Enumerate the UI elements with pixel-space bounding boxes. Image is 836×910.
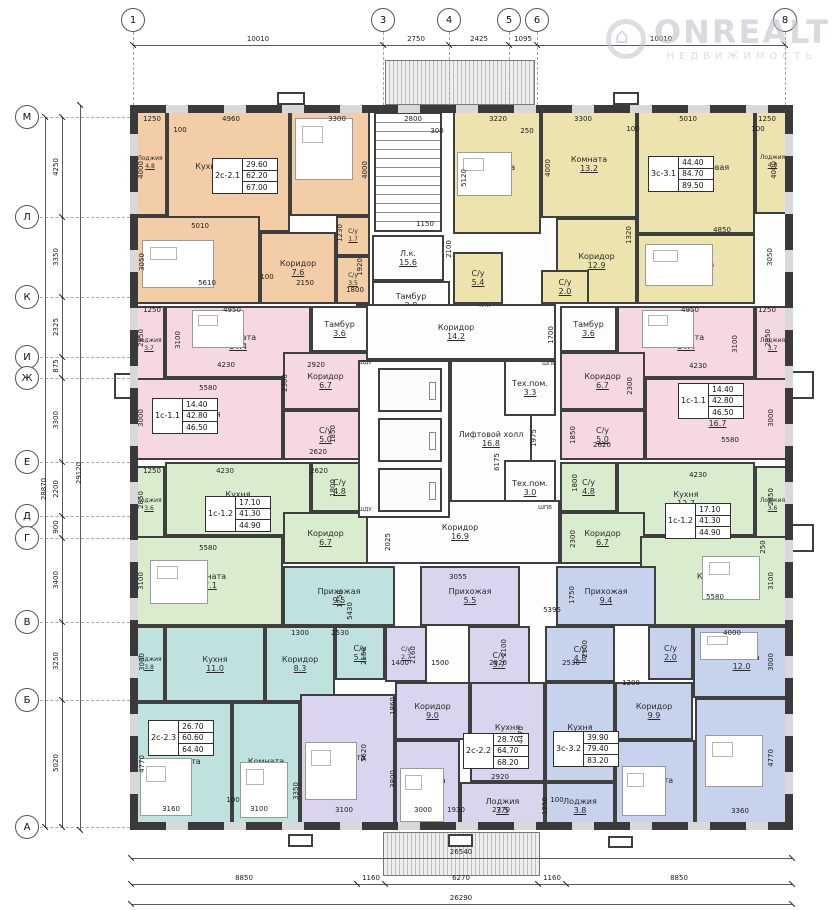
apartment-area-value: 60.60: [179, 733, 213, 745]
room-label: Тамбур: [324, 320, 355, 329]
apartment-info-block: 1с-1.114.4042.8046.50: [152, 398, 218, 434]
dimension-label: 2950: [137, 329, 145, 347]
dimension-label: 2150: [296, 279, 314, 287]
apartment-type-code: 1с-1.2: [206, 497, 236, 531]
room-area: 1.7: [348, 236, 358, 243]
apartment-area-value: 41.30: [236, 509, 270, 521]
apartment-area-value: 14.40: [709, 384, 743, 396]
grid-axis-marker: Е: [15, 450, 39, 474]
dimension-label: 3055: [449, 573, 467, 581]
room-area: 3.7: [144, 345, 154, 352]
bed-furniture: [642, 310, 694, 348]
apartment-area-value: 89.50: [679, 180, 713, 191]
grid-axis-line: [40, 462, 130, 463]
grid-axis-line: [40, 700, 130, 701]
apartment-info-block: 1с-1.217.1041.3044.90: [205, 496, 271, 532]
grid-axis-line: [509, 32, 510, 105]
room-label: Прихожая: [449, 587, 492, 596]
dimension-label: 5610: [198, 279, 216, 287]
dimension-label: 1250: [758, 115, 776, 123]
dimension-label: 3350: [292, 782, 300, 800]
dimension-label: 5020: [52, 754, 60, 772]
room-label: Кухня: [202, 655, 227, 664]
dimension-label: 2950: [764, 329, 772, 347]
utility-label: ШДУ: [358, 507, 372, 513]
dimension-label: 2850: [767, 488, 775, 506]
grid-axis-marker: 1: [121, 8, 145, 32]
balcony-canopy-top: [385, 60, 535, 105]
room-area: 16.8: [482, 439, 500, 449]
dimension-label: 1250: [143, 467, 161, 475]
room: Тамбур3.6: [560, 306, 617, 352]
apartment-type-code: 2с-2.3: [149, 721, 179, 755]
dimension-label: 3000: [767, 409, 775, 427]
dimension-label: 100: [226, 796, 239, 804]
dimension-label: 6270: [452, 874, 470, 882]
room-area: 4.8: [582, 487, 595, 497]
dimension-label: 4000: [544, 159, 552, 177]
dimension-label: 2920: [491, 773, 509, 781]
dimension-label: 2100: [581, 640, 589, 658]
dimension-label: 3100: [174, 331, 182, 349]
dimension-label: 8850: [235, 874, 253, 882]
dimension-label: 3100: [250, 805, 268, 813]
room-area: 3.8: [574, 806, 587, 816]
apartment-area-value: 44.40: [679, 157, 713, 169]
room-label: Коридор: [442, 523, 478, 532]
dimension-label: 2325: [52, 318, 60, 336]
apartment-area-value: 39.90: [584, 732, 618, 744]
exterior-wall-left: [130, 105, 138, 830]
apartment-area-value: 29.60: [243, 159, 277, 171]
elevator-car: [378, 468, 442, 512]
dimension-label: 2620: [593, 441, 611, 449]
grid-axis-line: [40, 827, 130, 828]
dimension-line: [45, 117, 46, 827]
apartment-type-code: 1с-1.1: [153, 399, 183, 433]
dimension-label: 3360: [731, 807, 749, 815]
dimension-label: 8850: [670, 874, 688, 882]
dimension-line: [62, 117, 63, 827]
room-label: Коридор: [307, 372, 343, 381]
room-label: С/у: [664, 644, 677, 653]
apartment-area-value: 46.50: [709, 407, 743, 418]
dimension-label: 1700: [547, 326, 555, 344]
grid-axis-marker: 8: [773, 8, 797, 32]
room-area: 2.0: [664, 653, 677, 663]
dimension-label: 4770: [138, 755, 146, 773]
dimension-label: 4230: [689, 471, 707, 479]
dimension-label: 3220: [489, 115, 507, 123]
dimension-label: 100: [751, 125, 764, 133]
grid-axis-line: [40, 538, 130, 539]
dimension-label: 100: [550, 796, 563, 804]
dimension-label: 3800: [389, 770, 397, 788]
dimension-line: [131, 904, 792, 905]
bed-furniture: [192, 310, 244, 348]
room-area: 6.7: [319, 381, 332, 391]
room-label: Коридор: [307, 529, 343, 538]
dimension-label: 4000: [770, 161, 778, 179]
room-area: 7.6: [292, 268, 305, 278]
room-area: 3.0: [524, 488, 537, 498]
room-label: Коридор: [280, 259, 316, 268]
dimension-label: 28870: [40, 478, 48, 500]
dimension-label: 10010: [650, 35, 672, 43]
room-area: 9.4: [600, 596, 613, 606]
apartment-info-block: 2с-2.129.6062.2067.00: [212, 158, 278, 194]
room-area: 11.0: [206, 664, 224, 674]
dimension-label: 2770: [492, 806, 510, 814]
room-label: Тамбур: [573, 320, 604, 329]
bed-furniture: [295, 118, 353, 180]
room-area: 6.7: [596, 381, 609, 391]
room: С/у2.0: [541, 270, 589, 304]
watermark-brand: ONREALT: [654, 16, 830, 48]
floor-plan: Лоджия4.8Кухня-столовая19.8Комната13.2Ко…: [0, 0, 836, 910]
room-area: 12.9: [588, 261, 606, 271]
grid-axis-line: [40, 516, 130, 517]
dimension-label: 3300: [52, 411, 60, 429]
dimension-label: 5120: [460, 169, 468, 187]
utility-label: ШПВ: [538, 505, 552, 511]
apartment-type-code: 2с-2.1: [213, 159, 243, 193]
apartment-type-code: 1с-1.1: [679, 384, 709, 418]
grid-axis-marker: В: [15, 610, 39, 634]
dimension-label: 2750: [407, 35, 425, 43]
bed-furniture: [645, 244, 713, 286]
room-area: 8.3: [294, 664, 307, 674]
dimension-line: [133, 45, 785, 46]
room-label: Лоджия: [563, 797, 597, 806]
apartment-area-value: 67.00: [243, 182, 277, 193]
dimension-label: 100: [260, 273, 273, 281]
dimension-label: 1250: [143, 115, 161, 123]
grid-axis-marker: Б: [15, 688, 39, 712]
apartment-area-value: 14.40: [183, 399, 217, 411]
apartment-type-code: 3с-3.2: [554, 732, 584, 766]
room-label: Коридор: [584, 372, 620, 381]
grid-axis-marker: М: [15, 105, 39, 129]
apartment-area-value: 68.20: [494, 757, 528, 768]
grid-axis-marker: Ж: [15, 366, 39, 390]
dimension-label: 26540: [450, 848, 472, 856]
dimension-label: 3000: [138, 653, 146, 671]
room-label: Кухня: [673, 490, 698, 499]
grid-axis-line: [133, 32, 134, 105]
dimension-label: 2100: [445, 240, 453, 258]
dimension-label: 3100: [731, 335, 739, 353]
dimension-label: 26290: [450, 894, 472, 902]
room: Л.к.15.6: [372, 235, 444, 281]
dimension-label: 4950: [681, 306, 699, 314]
vent-box: [288, 834, 313, 847]
apartment-info-block: 3с-3.239.9079.4083.20: [553, 731, 619, 767]
grid-axis-line: [537, 32, 538, 105]
room-area: 4.8: [145, 163, 155, 170]
dimension-label: 2150: [360, 647, 368, 665]
dimension-line: [131, 858, 792, 859]
grid-axis-marker: 5: [497, 8, 521, 32]
dimension-label: 1920: [356, 258, 364, 276]
apartment-area-value: 64.40: [179, 744, 213, 755]
dimension-label: 1160: [362, 874, 380, 882]
dimension-label: 29120: [75, 462, 83, 484]
room-label: Тамбур: [396, 292, 427, 301]
apartment-area-value: 83.20: [584, 755, 618, 766]
dimension-label: 1850: [329, 425, 337, 443]
apartment-info-block: 3с-3.144.4084.7089.50: [648, 156, 714, 192]
dimension-label: 2025: [384, 533, 392, 551]
dimension-label: 875: [52, 359, 60, 372]
dimension-label: 5620: [360, 744, 368, 762]
room-label: Прихожая: [585, 587, 628, 596]
apartment-area-value: 44.90: [696, 527, 730, 538]
dimension-label: 4000: [361, 161, 369, 179]
apartment-type-code: 3с-3.1: [649, 157, 679, 191]
room-area: 9.9: [648, 711, 661, 721]
dimension-label: 1200: [622, 679, 640, 687]
room-area: 5.5: [464, 596, 477, 606]
dimension-label: 1800: [571, 474, 579, 492]
grid-axis-line: [40, 378, 130, 379]
dimension-label: 3400: [52, 571, 60, 589]
dimension-label: 2620: [310, 467, 328, 475]
dimension-label: 4000: [723, 629, 741, 637]
apartment-area-value: 41.30: [696, 516, 730, 528]
dimension-label: 5580: [706, 593, 724, 601]
dimension-label: 4000: [137, 161, 145, 179]
grid-axis-marker: К: [15, 285, 39, 309]
room-area: 16.7: [709, 419, 727, 429]
room: Коридор6.7: [283, 512, 368, 564]
room-label: С/у: [582, 478, 595, 487]
room-label: Коридор: [636, 702, 672, 711]
dimension-label: 4230: [689, 362, 707, 370]
watermark-house-icon: [606, 19, 646, 59]
dimension-label: 4950: [223, 306, 241, 314]
grid-axis-line: [449, 32, 450, 105]
utility-label: ШДУ: [358, 360, 372, 366]
bed-furniture: [622, 766, 666, 816]
dimension-label: 1800: [346, 286, 364, 294]
apartment-area-value: 84.70: [679, 169, 713, 181]
dimension-label: 1230: [336, 224, 344, 242]
room-area: 3.6: [582, 329, 595, 339]
apartment-info-block: 2с-2.326.7060.6064.40: [148, 720, 214, 756]
room-area: 12.0: [733, 662, 751, 672]
apartment-areas: 39.9079.4083.20: [584, 732, 618, 766]
dimension-label: 3300: [328, 115, 346, 123]
dimension-label: 3100: [137, 572, 145, 590]
dimension-label: 300: [430, 127, 443, 135]
apartment-area-value: 79.40: [584, 744, 618, 756]
room: Коридор9.9: [615, 682, 693, 740]
dimension-label: 3000: [137, 409, 145, 427]
apartment-area-value: 42.80: [183, 411, 217, 423]
apartment-areas: 17.1041.3044.90: [236, 497, 270, 531]
grid-axis-marker: Л: [15, 205, 39, 229]
room-label: Коридор: [578, 252, 614, 261]
dimension-label: 1250: [758, 306, 776, 314]
dimension-label: 2300: [281, 374, 289, 392]
dimension-label: 3000: [767, 653, 775, 671]
dimension-label: 2100: [500, 639, 508, 657]
apartment-areas: 14.4042.8046.50: [183, 399, 217, 433]
grid-axis-marker: 3: [371, 8, 395, 32]
dimension-label: 5010: [679, 115, 697, 123]
dimension-label: 1150: [416, 220, 434, 228]
grid-axis-line: [40, 217, 130, 218]
room: С/у2.0: [648, 626, 693, 680]
dimension-label: 1850: [569, 426, 577, 444]
dimension-label: 5580: [199, 544, 217, 552]
utility-label: ШПВ: [542, 361, 556, 367]
dimension-label: 1975: [530, 429, 538, 447]
dimension-label: 5395: [543, 606, 561, 614]
room: С/у3.5: [336, 256, 370, 304]
apartment-areas: 29.6062.2067.00: [243, 159, 277, 193]
dimension-label: 5430: [346, 602, 354, 620]
dimension-label: 3100: [767, 572, 775, 590]
vent-box: [613, 92, 639, 105]
apartment-area-value: 64.70: [494, 746, 528, 758]
vent-box: [277, 92, 305, 105]
room-area: 3.6: [144, 505, 154, 512]
dimension-label: 2300: [626, 377, 634, 395]
dimension-label: 2850: [137, 491, 145, 509]
dimension-label: 5580: [721, 436, 739, 444]
apartment-area-value: 17.10: [236, 497, 270, 509]
room-label: С/у: [558, 278, 571, 287]
bed-furniture: [305, 742, 357, 800]
room: С/у5.4: [453, 252, 503, 304]
room: Тех.пом.3.3: [504, 360, 556, 416]
grid-axis-marker: Г: [15, 526, 39, 550]
room: С/у4.8: [560, 462, 617, 512]
room: Коридор6.7: [283, 352, 368, 410]
dimension-label: 2530: [562, 659, 580, 667]
room: Коридор9.0: [395, 682, 470, 740]
dimension-label: 3160: [162, 805, 180, 813]
room-label: Лоджия: [486, 797, 520, 806]
room: Коридор14.2: [356, 304, 556, 360]
dimension-label: 4850: [713, 226, 731, 234]
grid-axis-marker: А: [15, 815, 39, 839]
dimension-label: 6175: [493, 453, 501, 471]
grid-axis-line: [40, 357, 130, 358]
dimension-label: 1800: [329, 479, 337, 497]
dimension-label: 2920: [307, 361, 325, 369]
room: Прихожая5.5: [420, 566, 520, 626]
apartment-area-value: 46.50: [183, 422, 217, 433]
dimension-label: 1750: [568, 586, 576, 604]
dimension-label: 3100: [335, 806, 353, 814]
dimension-label: 4960: [222, 115, 240, 123]
grid-axis-line: [40, 117, 130, 118]
room-label: Коридор: [414, 702, 450, 711]
dimension-label: 2200: [52, 480, 60, 498]
apartment-areas: 17.1041.3044.90: [696, 504, 730, 538]
dimension-label: 3250: [52, 652, 60, 670]
dimension-label: 1095: [514, 35, 532, 43]
dimension-label: 1500: [431, 659, 449, 667]
apartment-area-value: 17.10: [696, 504, 730, 516]
apartment-info-block: 1с-1.217.1041.3044.90: [665, 503, 731, 539]
dimension-label: 4470: [517, 726, 525, 744]
grid-axis-marker: 4: [437, 8, 461, 32]
dimension-label: 1160: [543, 874, 561, 882]
exterior-wall-bottom: [130, 822, 793, 830]
utility-label: КТП: [479, 303, 490, 309]
room-label: С/у: [471, 269, 484, 278]
apartment-area-value: 26.70: [179, 721, 213, 733]
room-label: С/у: [596, 426, 609, 435]
dimension-label: 3050: [766, 248, 774, 266]
room: Тамбур3.6: [311, 306, 368, 352]
exterior-wall-right: [785, 105, 793, 830]
room-area: 16.9: [451, 532, 469, 542]
dimension-label: 5580: [199, 384, 217, 392]
room-area: 6.7: [319, 538, 332, 548]
window-bay: [790, 524, 814, 552]
grid-axis-line: [40, 297, 130, 298]
apartment-areas: 14.4042.8046.50: [709, 384, 743, 418]
apartment-areas: 26.7060.6064.40: [179, 721, 213, 755]
grid-axis-line: [785, 32, 786, 105]
apartment-areas: 44.4084.7089.50: [679, 157, 713, 191]
dimension-label: 250: [759, 540, 767, 553]
room-label: С/у: [348, 229, 358, 236]
dimension-label: 1400: [391, 659, 409, 667]
dimension-label: 10010: [247, 35, 269, 43]
dimension-label: 250: [520, 127, 533, 135]
dimension-label: 2920: [489, 659, 507, 667]
dimension-label: 100: [173, 126, 186, 134]
elevator-car: [378, 368, 442, 412]
room-area: 5.4: [472, 278, 485, 288]
room: Коридор7.6: [260, 232, 336, 304]
dimension-label: 2300: [569, 530, 577, 548]
dimension-line: [131, 884, 792, 885]
room: С/у4.8: [545, 626, 615, 682]
apartment-type-code: 1с-1.2: [666, 504, 696, 538]
room-label: Коридор: [282, 655, 318, 664]
room-label: Коридор: [584, 529, 620, 538]
vent-box: [448, 834, 473, 847]
grid-axis-marker: 6: [525, 8, 549, 32]
dimension-label: 4230: [217, 361, 235, 369]
room-label: Лифтовой холл: [459, 430, 524, 439]
apartment-area-value: 62.20: [243, 171, 277, 183]
room-area: 3.3: [524, 388, 537, 398]
watermark-subtitle: НЕДВИЖИМОСТЬ: [654, 51, 830, 62]
room-area: 15.6: [399, 258, 417, 268]
exterior-wall-top: [130, 105, 793, 113]
dimension-label: 1250: [143, 306, 161, 314]
dimension-label: 1860: [389, 697, 397, 715]
dimension-label: 1320: [625, 226, 633, 244]
grid-axis-line: [40, 622, 130, 623]
room-label: Комната: [571, 155, 607, 164]
dimension-label: 1930: [447, 806, 465, 814]
window-bay: [790, 371, 814, 399]
apartment-area-value: 42.80: [709, 396, 743, 408]
grid-axis-line: [383, 32, 384, 105]
dimension-label: 2620: [309, 448, 327, 456]
dimension-label: 4230: [216, 467, 234, 475]
elevator-car: [378, 418, 442, 462]
